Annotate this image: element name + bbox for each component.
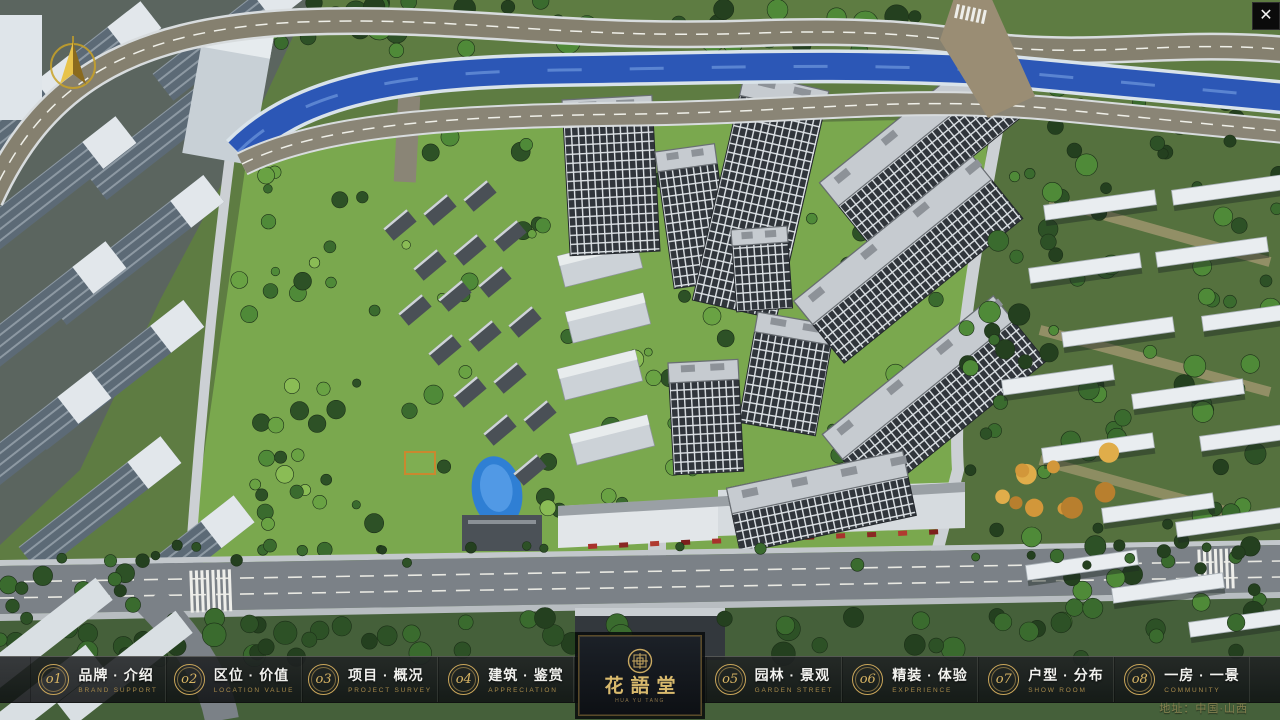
nav-number-badge: o2: [174, 664, 205, 695]
nav-caption: LOCATION VALUE: [214, 687, 295, 694]
nav-caption: APPRECIATION: [488, 687, 558, 694]
nav-number-badge: o6: [852, 664, 883, 695]
nav-item-garden[interactable]: o5 园林 · 景观 GARDEN STREET: [706, 657, 842, 702]
nav-number-badge: o3: [308, 664, 339, 695]
nav-text: 一房 · 一景 COMMUNITY: [1164, 665, 1239, 694]
close-button[interactable]: ✕: [1252, 2, 1280, 30]
nav-text: 区位 · 价值 LOCATION VALUE: [214, 665, 295, 694]
nav-caption: PROJECT SURVEY: [348, 687, 432, 694]
nav-text: 精装 · 体验 EXPERIENCE: [892, 665, 967, 694]
seal-emblem-icon: [627, 648, 653, 674]
nav-label: 区位 · 价值: [214, 665, 289, 685]
nav-item-floorplan[interactable]: o7 户型 · 分布 SHOW ROOM: [978, 657, 1114, 702]
address-text: 地址：中国·山西: [1159, 700, 1248, 716]
nav-item-brand[interactable]: o1 品牌 · 介绍 BRAND SUPPORT: [30, 657, 166, 702]
nav-caption: EXPERIENCE: [892, 687, 952, 694]
nav-text: 品牌 · 介绍 BRAND SUPPORT: [78, 665, 157, 694]
nav-label: 精装 · 体验: [892, 665, 967, 685]
nav-number-badge: o7: [988, 664, 1019, 695]
nav-label: 一房 · 一景: [1164, 665, 1239, 685]
nav-item-community[interactable]: o8 一房 · 一景 COMMUNITY: [1114, 657, 1250, 702]
nav-number-badge: o1: [38, 664, 69, 695]
nav-label: 项目 · 概况: [348, 665, 423, 685]
nav-label: 建筑 · 鉴赏: [488, 665, 563, 685]
nav-text: 项目 · 概况 PROJECT SURVEY: [348, 665, 432, 694]
nav-number-badge: o4: [448, 664, 479, 695]
aerial-master-plan-viewport[interactable]: [0, 0, 1280, 720]
nav-text: 建筑 · 鉴赏 APPRECIATION: [488, 665, 563, 694]
logo-caption: HUA YU TANG: [615, 698, 665, 704]
nav-item-project[interactable]: o3 项目 · 概况 PROJECT SURVEY: [302, 657, 438, 702]
nav-number-badge: o5: [715, 664, 746, 695]
logo-title: 花語堂: [597, 676, 682, 696]
nav-group-right: o5 园林 · 景观 GARDEN STREET o6 精装 · 体验 EXPE…: [706, 657, 1250, 702]
project-logo[interactable]: 花語堂 HUA YU TANG: [578, 635, 702, 716]
nav-text: 户型 · 分布 SHOW ROOM: [1028, 665, 1103, 694]
nav-caption: SHOW ROOM: [1028, 687, 1086, 694]
nav-label: 园林 · 景观: [755, 665, 830, 685]
nav-group-left: o1 品牌 · 介绍 BRAND SUPPORT o2 区位 · 价值 LOCA…: [30, 657, 574, 702]
nav-item-location[interactable]: o2 区位 · 价值 LOCATION VALUE: [166, 657, 302, 702]
nav-caption: GARDEN STREET: [755, 687, 834, 694]
nav-label: 品牌 · 介绍: [78, 665, 153, 685]
compass-icon: [40, 34, 106, 100]
nav-item-architecture[interactable]: o4 建筑 · 鉴赏 APPRECIATION: [438, 657, 574, 702]
nav-item-interior[interactable]: o6 精装 · 体验 EXPERIENCE: [842, 657, 978, 702]
nav-label: 户型 · 分布: [1028, 665, 1103, 685]
nav-caption: COMMUNITY: [1164, 687, 1220, 694]
nav-text: 园林 · 景观 GARDEN STREET: [755, 665, 834, 694]
nav-caption: BRAND SUPPORT: [78, 687, 157, 694]
aerial-master-plan: [0, 0, 1280, 720]
presentation-window: ✕ o1 品牌 · 介绍 BRAND SUPPORT o2 区位 · 价值 LO…: [0, 0, 1280, 720]
nav-number-badge: o8: [1124, 664, 1155, 695]
